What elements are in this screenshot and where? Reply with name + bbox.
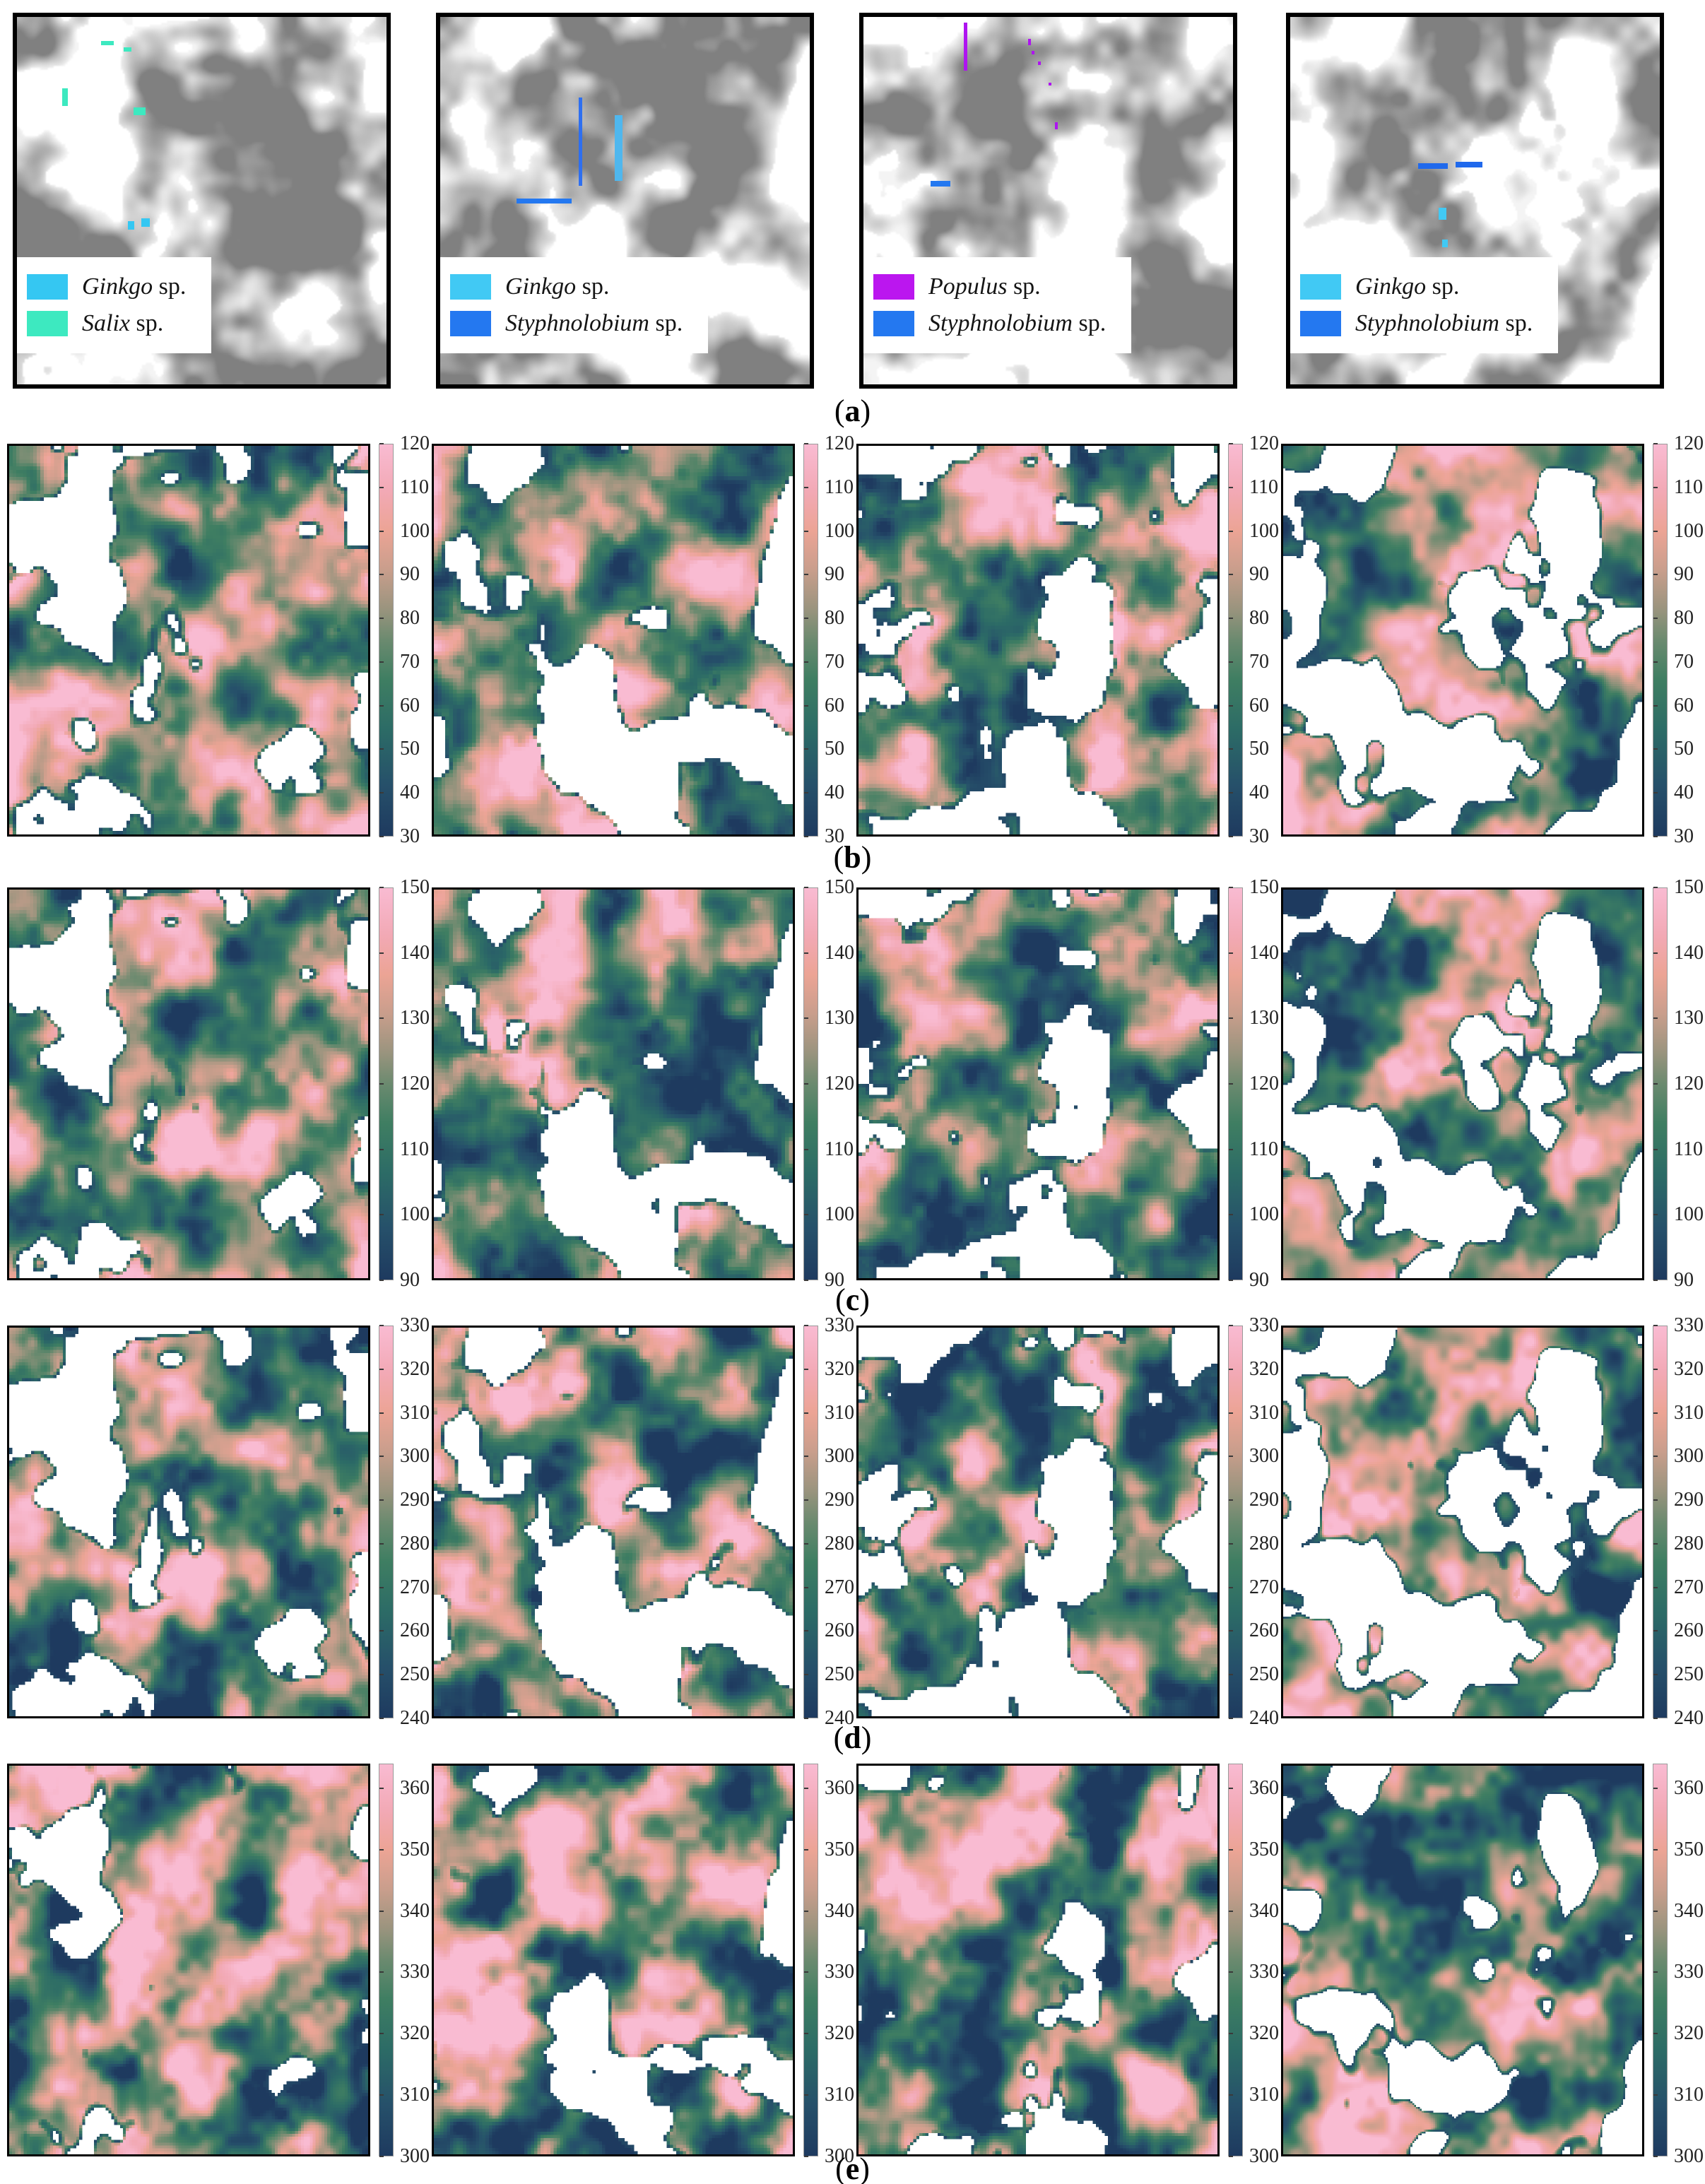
species-genus-text: Styphnolobium [928, 310, 1073, 336]
species-annotation-mark [579, 98, 582, 186]
colorbar-gradient [1653, 1326, 1668, 1718]
colorbar-tick-label: 140 [400, 941, 430, 965]
colorbar-tick [1229, 1788, 1233, 1789]
species-annotation-mark [1032, 51, 1034, 54]
colorbar-tick-label: 360 [1674, 1776, 1704, 1800]
colorbar: 300310320330340350360 [379, 1764, 430, 2156]
species-suffix-text: sp. [649, 310, 683, 336]
species-genus-text: Ginkgo [82, 273, 153, 300]
colorbar-tick-label: 80 [1674, 606, 1694, 630]
colorbar-tick-label: 40 [400, 781, 420, 805]
colorbar-tick [1229, 487, 1233, 488]
heatmap-canvas [859, 1766, 1217, 2154]
colorbar-tick [1229, 952, 1233, 954]
colorbar-tick-label: 360 [825, 1776, 854, 1800]
map-panel-c2 [432, 887, 795, 1280]
colorbar-tick-label: 280 [825, 1532, 854, 1556]
colorbar-tick-label: 310 [400, 1401, 430, 1425]
map-panel-b1 [7, 444, 370, 837]
colorbar-tick [804, 1849, 808, 1851]
colorbar: 300310320330340350360 [1228, 1764, 1279, 2156]
colorbar-gradient [803, 1326, 818, 1718]
species-annotation-mark [101, 41, 114, 45]
colorbar-tick-label: 270 [1674, 1576, 1704, 1600]
colorbar-tick [379, 952, 384, 954]
colorbar-tick-label: 50 [1674, 737, 1694, 761]
colorbar-tick [379, 661, 384, 663]
colorbar-tick [1653, 887, 1658, 888]
colorbar-tick-label: 330 [1674, 1960, 1704, 1984]
colorbar-tick [379, 792, 384, 793]
colorbar-tick [379, 1718, 384, 1719]
map-panel-a4: Ginkgo sp.Styphnolobium sp. [1286, 13, 1664, 389]
colorbar-tick-label: 150 [825, 875, 854, 899]
heatmap-canvas [434, 1766, 793, 2154]
species-annotation-mark [1028, 39, 1031, 45]
colorbar-tick [1653, 1718, 1658, 1719]
colorbar-tick [379, 1788, 384, 1789]
colorbar-tick [804, 531, 808, 532]
colorbar-tick [804, 887, 808, 888]
colorbar-tick-label: 110 [1249, 1138, 1278, 1162]
heatmap-canvas [434, 1328, 793, 1716]
colorbar-tick-label: 120 [1674, 1072, 1704, 1096]
colorbar-tick-label: 50 [825, 737, 844, 761]
colorbar-tick [379, 1280, 384, 1281]
colorbar-tick [379, 1325, 384, 1326]
colorbar-tick [1653, 2094, 1658, 2096]
colorbar-tick [379, 2033, 384, 2034]
colorbar-tick [379, 1456, 384, 1457]
colorbar-tick [1653, 618, 1658, 619]
colorbar-tick [1229, 1630, 1233, 1631]
colorbar-tick-label: 360 [400, 1776, 430, 1800]
heatmap-canvas [9, 1766, 368, 2154]
colorbar-tick-label: 110 [1249, 476, 1278, 500]
row-label-paren: ) [861, 394, 871, 428]
colorbar-tick [804, 1280, 808, 1281]
colorbar-tick [379, 487, 384, 488]
colorbar-tick-label: 110 [1674, 1138, 1703, 1162]
legend-color-swatch [873, 311, 914, 336]
colorbar-tick-label: 350 [1674, 1838, 1704, 1862]
species-suffix-text: sp. [1007, 273, 1040, 300]
colorbar-tick [1229, 2033, 1233, 2034]
colorbar-tick-label: 100 [1249, 519, 1279, 543]
colorbar-tick-label: 80 [825, 606, 844, 630]
colorbar-tick [804, 1325, 808, 1326]
colorbar-tick-label: 120 [400, 432, 430, 456]
colorbar-tick-label: 290 [400, 1488, 430, 1512]
colorbar-tick [804, 1412, 808, 1414]
row-label-letter: a [845, 394, 861, 428]
row-label-paren: ( [834, 394, 845, 428]
colorbar-tick-label: 50 [400, 737, 420, 761]
colorbar-tick [1229, 1849, 1233, 1851]
colorbar-tick [1229, 705, 1233, 707]
colorbar-tick [1653, 1280, 1658, 1281]
species-label: Styphnolobium sp. [1355, 309, 1533, 338]
colorbar-gradient [1653, 1764, 1668, 2156]
colorbar-tick-label: 330 [1674, 1314, 1704, 1338]
colorbar-tick-label: 300 [825, 1444, 854, 1468]
colorbar-tick [379, 1369, 384, 1370]
colorbar: 240250260270280290300310320330 [1653, 1326, 1704, 1718]
colorbar-tick [804, 1499, 808, 1501]
species-annotation-mark [62, 88, 68, 106]
map-panel-c1 [7, 887, 370, 1280]
species-annotation-mark [517, 199, 572, 203]
colorbar-tick-label: 60 [825, 694, 844, 718]
colorbar-tick [1653, 1543, 1658, 1545]
colorbar-tick-label: 40 [825, 781, 844, 805]
colorbar-tick [1653, 1214, 1658, 1215]
colorbar-tick-label: 270 [825, 1576, 854, 1600]
colorbar-tick [379, 618, 384, 619]
colorbar-tick [804, 443, 808, 444]
colorbar-tick [379, 1911, 384, 1912]
colorbar-tick-label: 290 [825, 1488, 854, 1512]
colorbar-tick [379, 1543, 384, 1545]
colorbar-tick [804, 792, 808, 793]
heatmap-canvas [859, 890, 1217, 1278]
colorbar-tick [1229, 1674, 1233, 1675]
colorbar-tick-label: 320 [1249, 1357, 1279, 1381]
legend-color-swatch [450, 311, 491, 336]
colorbar-tick-label: 280 [1249, 1532, 1279, 1556]
species-legend: Populus sp.Styphnolobium sp. [863, 257, 1131, 353]
heatmap-canvas [1283, 890, 1642, 1278]
colorbar-tick [1653, 487, 1658, 488]
colorbar: 240250260270280290300310320330 [1228, 1326, 1279, 1718]
map-panel-e1 [7, 1764, 370, 2156]
colorbar-tick [804, 487, 808, 488]
colorbar-tick [379, 748, 384, 750]
colorbar-tick [379, 1149, 384, 1150]
colorbar-tick-label: 280 [400, 1532, 430, 1556]
species-genus-text: Ginkgo [505, 273, 576, 300]
colorbar-tick-label: 260 [1674, 1619, 1704, 1643]
legend-entry: Populus sp. [873, 273, 1106, 301]
colorbar-tick-label: 320 [400, 1357, 430, 1381]
row-label-c: (c) [0, 1285, 1705, 1316]
heatmap-canvas [859, 446, 1217, 834]
legend-entry: Styphnolobium sp. [1300, 309, 1533, 338]
colorbar-tick [1229, 1412, 1233, 1414]
colorbar-tick-label: 60 [1249, 694, 1269, 718]
colorbar-tick [804, 574, 808, 575]
colorbar-tick [1653, 792, 1658, 793]
colorbar-tick [1653, 1412, 1658, 1414]
colorbar-tick [1653, 1911, 1658, 1912]
row-label-paren: ( [835, 2151, 846, 2184]
species-annotation-mark [1442, 240, 1448, 247]
colorbar-tick [1229, 792, 1233, 793]
colorbar-tick-label: 130 [1249, 1006, 1279, 1030]
colorbar-tick [1229, 618, 1233, 619]
colorbar-tick-label: 130 [400, 1006, 430, 1030]
species-label: Ginkgo sp. [82, 273, 186, 301]
colorbar-tick-label: 130 [825, 1006, 854, 1030]
colorbar-tick-label: 70 [400, 650, 420, 674]
colorbar-tick-label: 330 [825, 1960, 854, 1984]
colorbar-gradient [379, 1326, 394, 1718]
colorbar-tick-label: 250 [1674, 1663, 1704, 1687]
row-label-paren: ) [859, 2151, 870, 2184]
colorbar-tick [804, 1587, 808, 1588]
colorbar-tick [1653, 1456, 1658, 1457]
colorbar-tick [1229, 1718, 1233, 1719]
map-panel-d3 [856, 1326, 1220, 1718]
colorbar: 90100110120130140150 [1653, 887, 1704, 1280]
colorbar-tick-label: 150 [400, 875, 430, 899]
colorbar-tick [804, 1543, 808, 1545]
colorbar-tick-label: 100 [825, 1203, 854, 1227]
colorbar-tick [379, 1017, 384, 1019]
legend-entry: Styphnolobium sp. [873, 309, 1106, 338]
colorbar-tick-label: 260 [400, 1619, 430, 1643]
map-panel-e2 [432, 1764, 795, 2156]
species-legend: Ginkgo sp.Styphnolobium sp. [440, 257, 708, 353]
row-label-paren: ( [835, 1282, 846, 1317]
colorbar-tick [804, 1214, 808, 1215]
colorbar-gradient [803, 444, 818, 837]
colorbar-tick-label: 40 [1249, 781, 1269, 805]
colorbar-tick [1229, 887, 1233, 888]
colorbar-tick [1653, 443, 1658, 444]
map-panel-b4 [1281, 444, 1644, 837]
colorbar-gradient [1228, 1326, 1243, 1718]
colorbar-tick [1653, 705, 1658, 707]
colorbar-tick-label: 310 [825, 2083, 854, 2107]
map-panel-c4 [1281, 887, 1644, 1280]
colorbar-tick-label: 70 [1249, 650, 1269, 674]
colorbar-tick-label: 120 [1249, 1072, 1279, 1096]
colorbar-tick [1229, 574, 1233, 575]
colorbar: 90100110120130140150 [1228, 887, 1279, 1280]
colorbar-tick [379, 1499, 384, 1501]
colorbar-tick [379, 1214, 384, 1215]
species-annotation-mark [1456, 162, 1482, 167]
heatmap-canvas [1283, 1328, 1642, 1716]
colorbar-tick [1229, 2094, 1233, 2096]
colorbar-tick [379, 531, 384, 532]
species-suffix-text: sp. [1499, 310, 1533, 336]
colorbar-tick [804, 2033, 808, 2034]
colorbar-tick-label: 260 [1249, 1619, 1279, 1643]
colorbar-tick [804, 1456, 808, 1457]
colorbar-tick [804, 1083, 808, 1085]
colorbar-tick-label: 330 [1249, 1314, 1279, 1338]
colorbar-tick [1229, 443, 1233, 444]
map-panel-d1 [7, 1326, 370, 1718]
colorbar-tick [1653, 836, 1658, 837]
colorbar-tick-label: 90 [825, 562, 844, 586]
colorbar-tick-label: 320 [825, 2021, 854, 2046]
heatmap-canvas [1283, 446, 1642, 834]
colorbar-tick [379, 1587, 384, 1588]
species-genus-text: Styphnolobium [1355, 310, 1499, 336]
colorbar: 30405060708090100110120 [1228, 444, 1279, 837]
species-annotation-mark [1418, 163, 1448, 169]
species-genus-text: Salix [82, 310, 130, 336]
colorbar: 30405060708090100110120 [1653, 444, 1704, 837]
colorbar-tick [1229, 748, 1233, 750]
colorbar-tick-label: 120 [825, 1072, 854, 1096]
species-genus-text: Styphnolobium [505, 310, 649, 336]
species-suffix-text: sp. [1073, 310, 1106, 336]
heatmap-canvas [434, 446, 793, 834]
colorbar-tick [1653, 1674, 1658, 1675]
colorbar-tick-label: 40 [1674, 781, 1694, 805]
legend-color-swatch [27, 274, 68, 300]
row-label-paren: ( [834, 1720, 844, 1755]
legend-color-swatch [873, 274, 914, 300]
colorbar-tick [379, 574, 384, 575]
colorbar-gradient [379, 444, 394, 837]
row-label-e: (e) [0, 2154, 1705, 2184]
species-suffix-text: sp. [130, 310, 163, 336]
colorbar-tick [1653, 1849, 1658, 1851]
colorbar-tick-label: 320 [1249, 2021, 1279, 2046]
figure-root: Ginkgo sp.Salix sp.Ginkgo sp.Styphnolobi… [0, 0, 1705, 2184]
species-label: Ginkgo sp. [1355, 273, 1459, 301]
colorbar-tick-label: 60 [400, 694, 420, 718]
colorbar-tick-label: 130 [1674, 1006, 1704, 1030]
colorbar-tick-label: 80 [400, 606, 420, 630]
species-legend: Ginkgo sp.Salix sp. [17, 257, 211, 353]
row-label-letter: c [846, 1282, 860, 1317]
colorbar-tick [1653, 574, 1658, 575]
row-label-paren: ( [834, 840, 844, 875]
species-annotation-mark [1055, 122, 1058, 129]
colorbar-tick-label: 270 [400, 1576, 430, 1600]
colorbar: 90100110120130140150 [379, 887, 430, 1280]
colorbar-tick-label: 100 [400, 519, 430, 543]
map-panel-d4 [1281, 1326, 1644, 1718]
heatmap-canvas [9, 446, 368, 834]
colorbar-tick-label: 140 [825, 941, 854, 965]
colorbar-tick [804, 952, 808, 954]
colorbar-tick [804, 1971, 808, 1973]
colorbar-tick [1653, 1369, 1658, 1370]
colorbar-tick [804, 1788, 808, 1789]
colorbar-tick-label: 310 [1249, 2083, 1279, 2107]
colorbar-tick [379, 1971, 384, 1973]
colorbar-tick-label: 110 [1674, 476, 1703, 500]
colorbar-tick [1229, 1017, 1233, 1019]
colorbar-tick [1229, 531, 1233, 532]
species-legend: Ginkgo sp.Styphnolobium sp. [1290, 257, 1558, 353]
colorbar-tick-label: 70 [825, 650, 844, 674]
colorbar-tick [804, 618, 808, 619]
species-annotation-mark [128, 221, 134, 229]
colorbar-tick-label: 260 [825, 1619, 854, 1643]
colorbar-tick-label: 140 [1674, 941, 1704, 965]
colorbar-tick-label: 250 [825, 1663, 854, 1687]
legend-entry: Styphnolobium sp. [450, 309, 683, 338]
colorbar-tick-label: 150 [1249, 875, 1279, 899]
colorbar-tick [804, 1630, 808, 1631]
colorbar-tick [1653, 531, 1658, 532]
colorbar-tick-label: 90 [1674, 562, 1694, 586]
species-genus-text: Populus [928, 273, 1007, 300]
colorbar-tick [804, 1369, 808, 1370]
colorbar-tick [1653, 2033, 1658, 2034]
colorbar-tick-label: 300 [1674, 1444, 1704, 1468]
colorbar-tick-label: 110 [400, 476, 429, 500]
colorbar-tick-label: 300 [1249, 1444, 1279, 1468]
colorbar-tick-label: 70 [1674, 650, 1694, 674]
colorbar-tick [1653, 1083, 1658, 1085]
map-panel-e3 [856, 1764, 1220, 2156]
row-label-b: (b) [0, 842, 1705, 873]
colorbar-tick-label: 330 [825, 1314, 854, 1338]
colorbar-tick-label: 310 [825, 1401, 854, 1425]
colorbar-tick [1229, 1369, 1233, 1370]
legend-entry: Ginkgo sp. [27, 273, 186, 301]
colorbar-gradient [1228, 444, 1243, 837]
colorbar-tick [804, 1911, 808, 1912]
colorbar-tick-label: 50 [1249, 737, 1269, 761]
species-label: Salix sp. [82, 309, 163, 338]
colorbar-tick [379, 2094, 384, 2096]
colorbar-tick [379, 705, 384, 707]
colorbar: 240250260270280290300310320330 [379, 1326, 430, 1718]
colorbar-tick [1653, 748, 1658, 750]
colorbar-tick-label: 320 [825, 1357, 854, 1381]
colorbar-tick [804, 661, 808, 663]
colorbar-tick-label: 100 [825, 519, 854, 543]
colorbar-gradient [803, 1764, 818, 2156]
legend-entry: Salix sp. [27, 309, 186, 338]
species-label: Styphnolobium sp. [505, 309, 683, 338]
map-panel-d2 [432, 1326, 795, 1718]
colorbar-tick-label: 320 [1674, 2021, 1704, 2046]
species-label: Styphnolobium sp. [928, 309, 1106, 338]
legend-color-swatch [1300, 311, 1341, 336]
heatmap-canvas [434, 890, 793, 1278]
colorbar-tick-label: 310 [400, 2083, 430, 2107]
species-annotation-mark [931, 181, 950, 186]
colorbar-tick-label: 350 [400, 1838, 430, 1862]
colorbar-tick-label: 150 [1674, 875, 1704, 899]
map-panel-b2 [432, 444, 795, 837]
colorbar-tick-label: 250 [1249, 1663, 1279, 1687]
colorbar: 30405060708090100110120 [803, 444, 854, 837]
colorbar-tick-label: 120 [1674, 432, 1704, 456]
colorbar-tick [1653, 1499, 1658, 1501]
row-label-paren: ) [861, 1720, 872, 1755]
species-label: Ginkgo sp. [505, 273, 609, 301]
species-annotation-mark [1439, 208, 1446, 220]
colorbar-tick [1229, 1499, 1233, 1501]
colorbar-tick [1229, 1971, 1233, 1973]
species-annotation-mark [1038, 61, 1041, 65]
colorbar-tick-label: 330 [400, 1960, 430, 1984]
colorbar-gradient [1228, 1764, 1243, 2156]
legend-entry: Ginkgo sp. [450, 273, 683, 301]
colorbar-tick [1653, 1587, 1658, 1588]
colorbar-tick [1229, 1911, 1233, 1912]
species-annotation-mark [141, 218, 151, 227]
species-genus-text: Ginkgo [1355, 273, 1426, 300]
colorbar-tick-label: 340 [825, 1899, 854, 1923]
colorbar-tick-label: 310 [1674, 1401, 1704, 1425]
colorbar-tick [1653, 1149, 1658, 1150]
colorbar-tick-label: 100 [1674, 519, 1704, 543]
colorbar-tick [804, 748, 808, 750]
